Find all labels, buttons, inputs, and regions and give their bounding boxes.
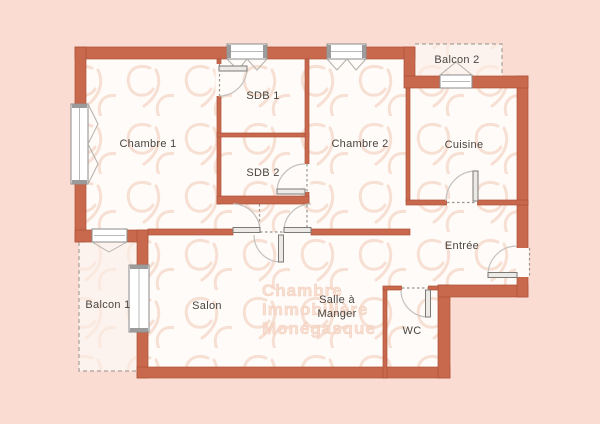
wall-bottom xyxy=(137,367,450,378)
room-label-salon: Salon xyxy=(192,300,222,312)
wall-wc-right xyxy=(438,285,450,378)
room-label-salle-a-manger-1: Salle à xyxy=(319,294,355,306)
room-label-sdb2: SDB 2 xyxy=(246,167,279,179)
room-label-sdb1: SDB 1 xyxy=(246,90,279,102)
wall-wc-left xyxy=(383,287,387,378)
wall-balcon2-post xyxy=(404,47,415,76)
floor-plan-canvas: Chambre Immobilière Monégasque xyxy=(0,0,600,424)
room-label-cuisine: Cuisine xyxy=(445,139,484,151)
wall-salon-top-right xyxy=(311,229,410,235)
room-label-entree: Entrée xyxy=(445,240,479,252)
room-label-balcon1: Balcon 1 xyxy=(85,299,130,311)
room-label-balcon2: Balcon 2 xyxy=(434,54,479,66)
wall-cuisine-left xyxy=(406,88,410,201)
room-label-chambre2: Chambre 2 xyxy=(331,138,388,150)
wall-step-right xyxy=(438,285,528,297)
wall-sdb-bottom xyxy=(217,196,309,204)
window-salon-left xyxy=(129,265,149,332)
watermark-line-3: Monégasque xyxy=(262,319,376,338)
wall-sdb-divider xyxy=(217,133,309,137)
room-label-salle-a-manger-2: Manger xyxy=(317,308,356,320)
room-label-chambre1: Chambre 1 xyxy=(119,138,176,150)
wall-salon-top-left xyxy=(148,229,233,235)
floor-plan: Chambre Immobilière Monégasque xyxy=(0,0,600,424)
room-label-wc: WC xyxy=(403,325,422,337)
